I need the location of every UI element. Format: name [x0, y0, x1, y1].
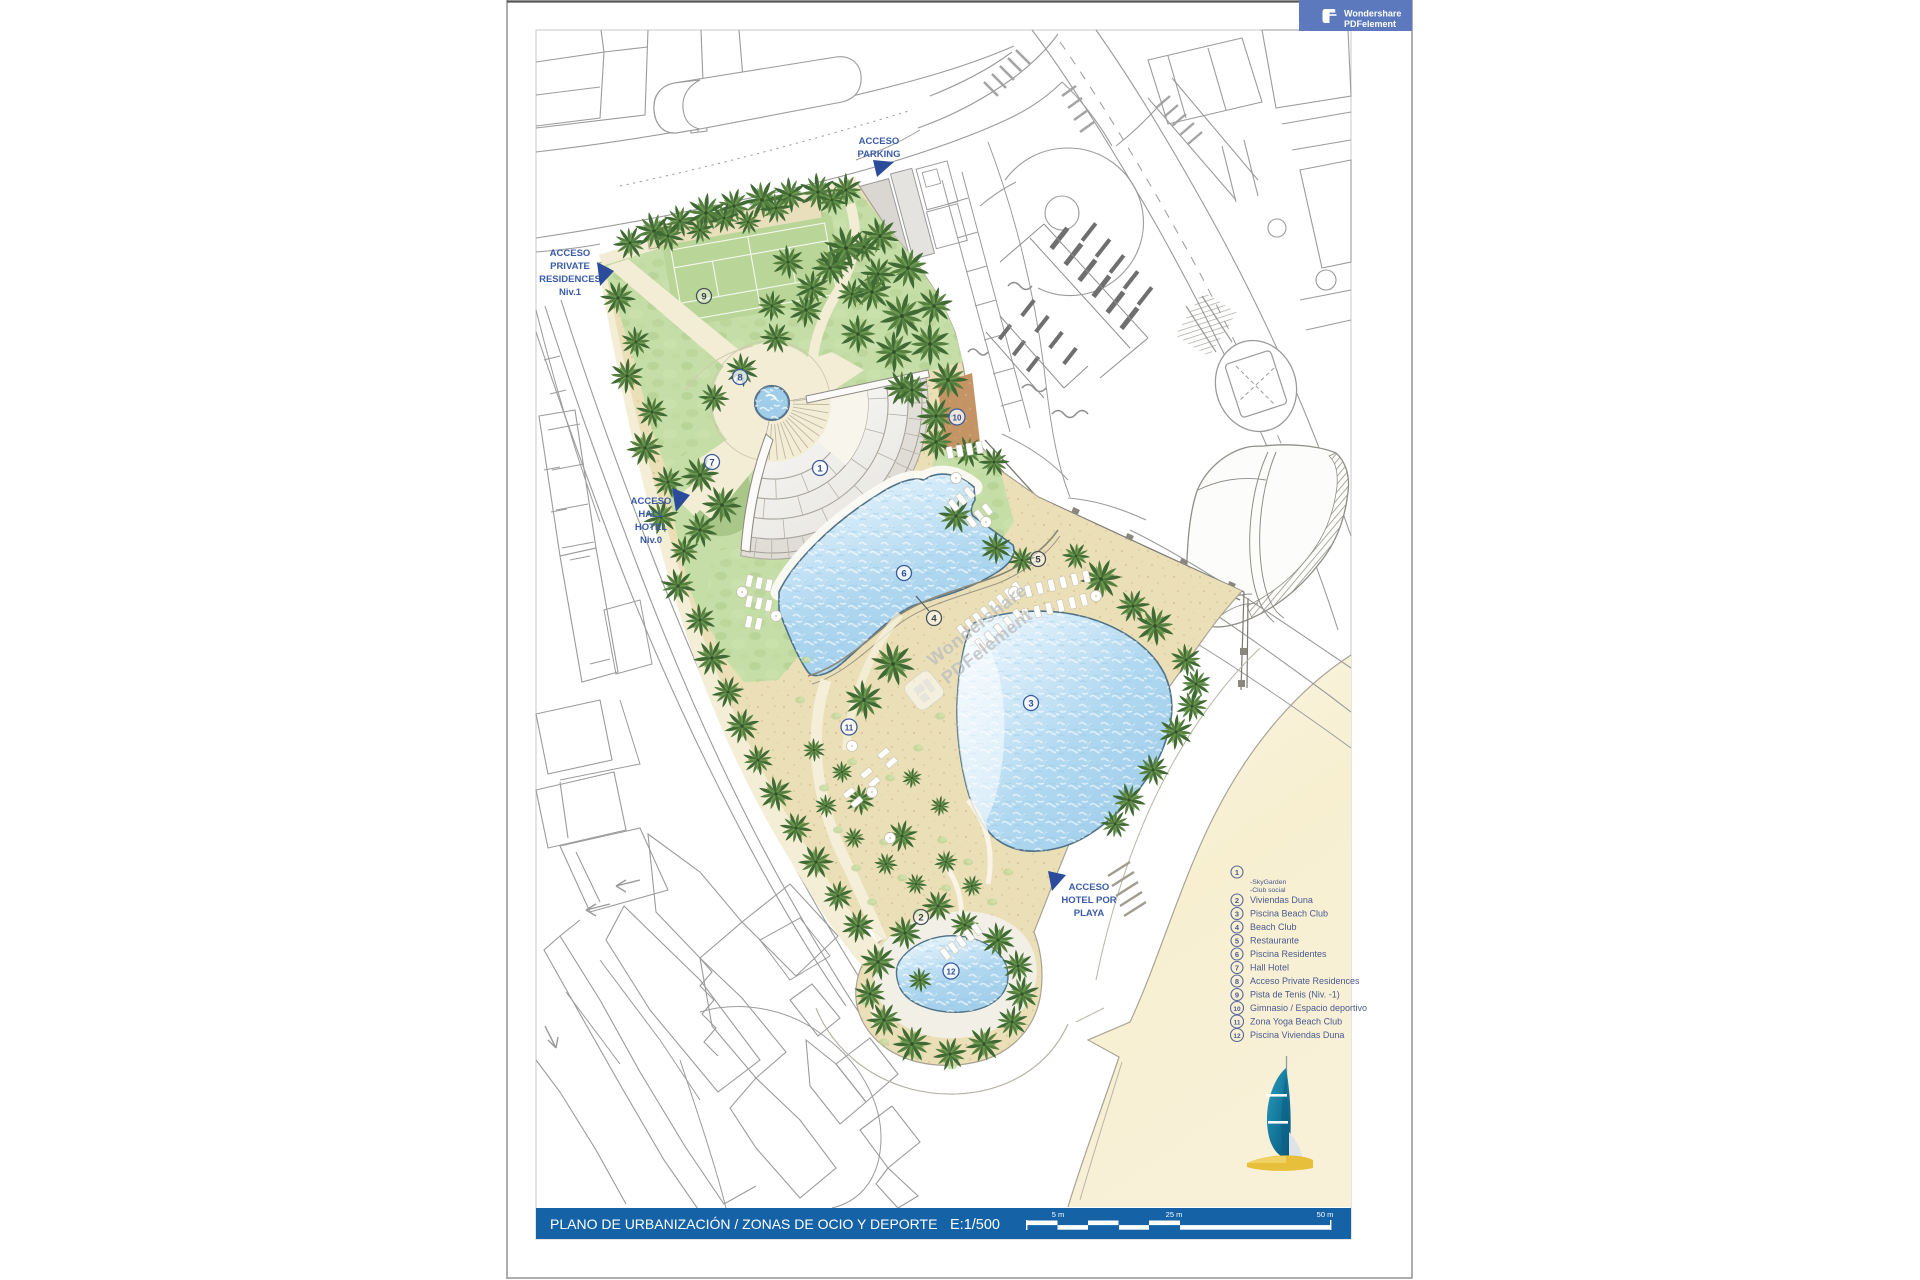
svg-text:50 m: 50 m	[1317, 1210, 1334, 1219]
svg-text:PRIVATE: PRIVATE	[550, 261, 590, 272]
svg-text:11: 11	[845, 724, 854, 733]
svg-text:10: 10	[953, 414, 962, 423]
svg-text:PLANO DE URBANIZACIÓN / ZONAS: PLANO DE URBANIZACIÓN / ZONAS DE OCIO Y …	[550, 1216, 937, 1232]
svg-text:Restaurante: Restaurante	[1250, 936, 1299, 946]
svg-text:12: 12	[947, 968, 956, 977]
svg-text:HOTEL: HOTEL	[635, 522, 667, 533]
svg-text:12: 12	[1233, 1033, 1241, 1040]
svg-text:11: 11	[1234, 1020, 1241, 1027]
svg-text:9: 9	[1235, 991, 1239, 1000]
svg-text:2: 2	[1235, 896, 1239, 905]
svg-text:7: 7	[1235, 964, 1239, 973]
svg-text:Piscina Beach Club: Piscina Beach Club	[1250, 909, 1328, 919]
svg-text:Beach Club: Beach Club	[1250, 922, 1297, 932]
svg-text:10: 10	[1233, 1006, 1241, 1013]
svg-text:7: 7	[709, 458, 714, 469]
svg-text:6: 6	[901, 569, 906, 580]
svg-text:Pista de Tenis (Niv. -1): Pista de Tenis (Niv. -1)	[1250, 990, 1340, 1000]
svg-text:25 m: 25 m	[1166, 1210, 1183, 1219]
svg-text:PLAYA: PLAYA	[1074, 908, 1105, 919]
svg-text:8: 8	[1235, 977, 1239, 986]
svg-text:ACCESO: ACCESO	[859, 136, 900, 147]
svg-text:ACCESO: ACCESO	[631, 496, 672, 507]
svg-text:Piscina Residentes: Piscina Residentes	[1250, 949, 1327, 959]
svg-text:Acceso Private Residences: Acceso Private Residences	[1250, 976, 1360, 986]
svg-text:ACCESO: ACCESO	[550, 248, 591, 259]
svg-text:Wondershare: Wondershare	[1344, 9, 1401, 19]
svg-text:5 m: 5 m	[1052, 1210, 1065, 1219]
svg-text:ACCESO: ACCESO	[1069, 882, 1110, 893]
svg-text:Zona Yoga Beach Club: Zona Yoga Beach Club	[1250, 1017, 1342, 1027]
svg-text:5: 5	[1235, 937, 1239, 946]
svg-text:PARKING: PARKING	[857, 149, 900, 160]
svg-text:6: 6	[1235, 950, 1239, 959]
svg-text:HALL: HALL	[638, 509, 664, 520]
svg-text:1: 1	[1235, 868, 1239, 877]
svg-text:2: 2	[918, 913, 923, 924]
svg-text:Hall Hotel: Hall Hotel	[1250, 963, 1289, 973]
svg-text:4: 4	[931, 614, 937, 625]
svg-text:Gimnasio / Espacio deportivo: Gimnasio / Espacio deportivo	[1250, 1003, 1367, 1013]
svg-text:Niv.0: Niv.0	[640, 535, 662, 546]
svg-text:9: 9	[701, 292, 706, 303]
svg-text:PDFelement: PDFelement	[1344, 19, 1396, 29]
svg-text:Viviendas Duna: Viviendas Duna	[1250, 895, 1313, 905]
svg-text:3: 3	[1235, 910, 1239, 919]
svg-text:Niv.1: Niv.1	[559, 287, 582, 298]
svg-text:3: 3	[1028, 699, 1033, 710]
svg-text:8: 8	[737, 373, 742, 384]
svg-text:-SkyGarden: -SkyGarden	[1250, 879, 1286, 886]
svg-text:RESIDENCES: RESIDENCES	[539, 274, 601, 285]
svg-text:1: 1	[817, 464, 823, 475]
svg-text:Piscina Viviendas Duna: Piscina Viviendas Duna	[1250, 1030, 1344, 1040]
svg-text:E:1/500: E:1/500	[950, 1217, 1000, 1233]
svg-text:HOTEL POR: HOTEL POR	[1061, 895, 1116, 906]
svg-text:-Club social: -Club social	[1250, 887, 1286, 894]
svg-text:5: 5	[1035, 555, 1041, 566]
